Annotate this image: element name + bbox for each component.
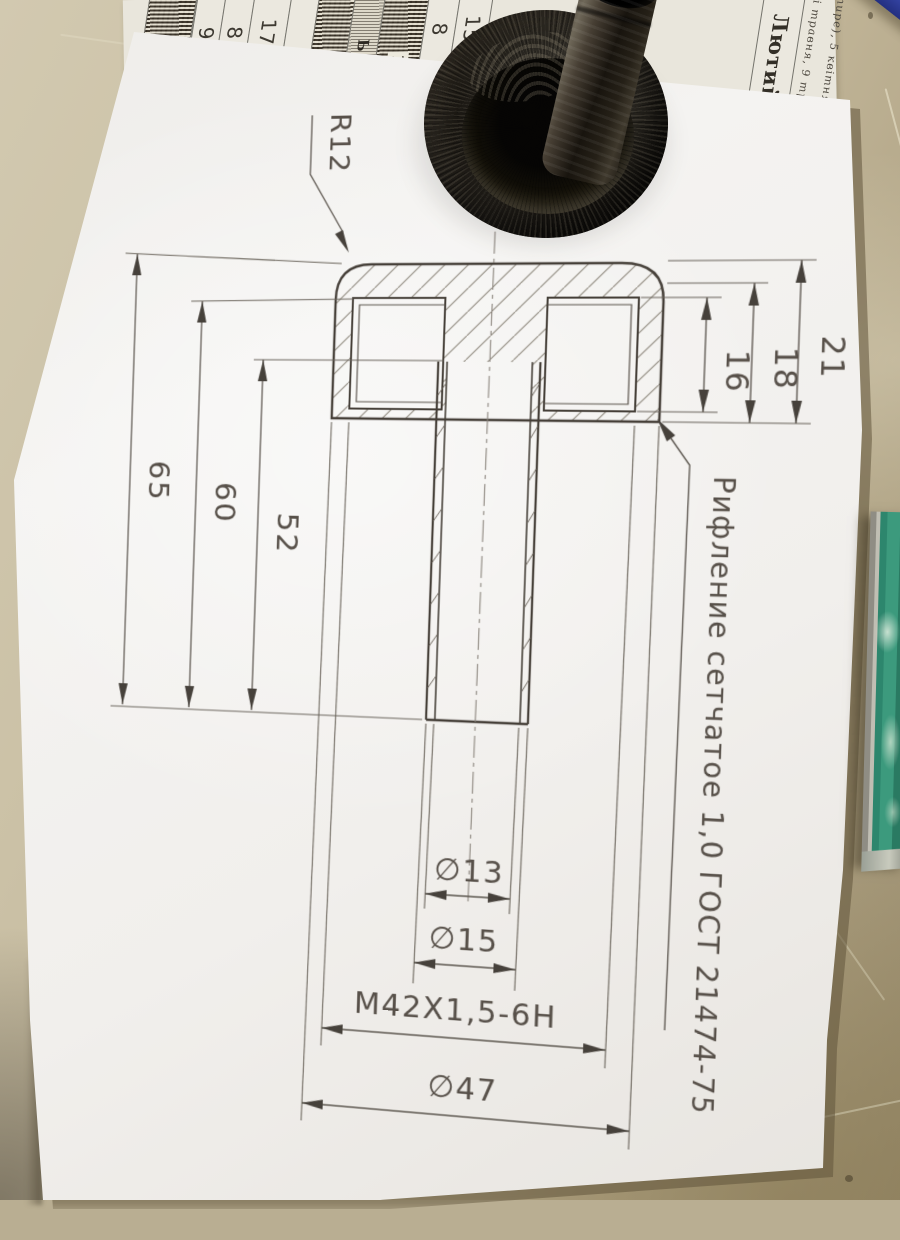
dim-65-label: 65 [141, 460, 176, 502]
dia-47-label: ∅47 [427, 1068, 498, 1110]
dia-15-label: ∅15 [428, 920, 499, 961]
knurling-note-label: Рифление сетчатое 1,0 ГОСТ 21474-75 [684, 476, 740, 1117]
thread-window-right-inner [544, 305, 632, 405]
cap-section-hatch [332, 263, 665, 422]
photo-scene: 92821791615Ь 22д1787151497652189Лютийі т… [0, 0, 900, 1200]
dim-21-label: 21 [812, 335, 852, 379]
thread-label: M42X1,5-6H [354, 985, 558, 1036]
tube-groove [576, 6, 651, 28]
dim-60-label: 60 [207, 482, 242, 524]
thread-window-left-inner [356, 305, 445, 403]
dim-52-label: 52 [269, 512, 305, 554]
dim-18-label: 18 [765, 347, 805, 391]
thread-window-left [349, 298, 445, 410]
dia-13-label: ∅13 [434, 852, 505, 892]
tube-opening [579, 0, 663, 15]
dim-16-label: 16 [717, 349, 756, 393]
radius-label: R12 [323, 113, 358, 174]
thread-window-right [544, 298, 639, 412]
